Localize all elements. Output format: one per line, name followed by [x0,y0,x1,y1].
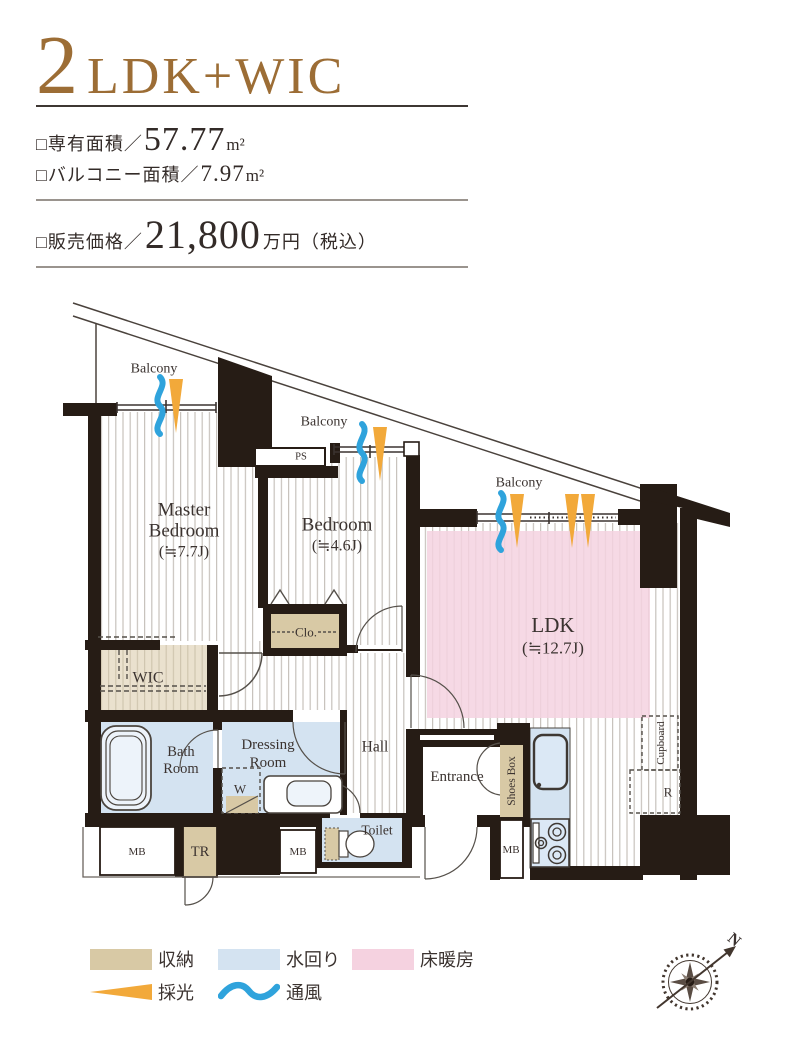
label-clo: Clo. [295,625,317,640]
legend-daylight: 採光 [90,979,194,1005]
label-balcony-3: Balcony [496,476,543,491]
legend-ventilation-label: 通風 [286,979,322,1005]
water-swatch-icon [218,949,280,970]
entrance-step-line [420,735,494,740]
storage-swatch-icon [90,949,152,970]
legend-ventilation: 通風 [218,979,322,1005]
legend-water: 水回り [218,946,340,972]
label-dressing-2: Room [250,755,287,771]
legend-floor-heating-label: 床暖房 [420,946,474,972]
label-dressing-1: Dressing [241,737,295,753]
label-refrigerator: R [664,785,673,800]
label-bath-1: Bath [167,744,195,760]
legend-daylight-label: 採光 [158,979,194,1005]
label-balcony-1: Balcony [131,362,178,377]
kitchen-sink-icon [534,735,567,789]
compass-north-label: N [724,930,744,951]
label-washer: W [234,782,247,797]
label-shoes-box: Shoes Box [506,756,518,806]
bathtub-icon [101,726,151,810]
compass-icon: N [657,930,744,1009]
utility-boxes [100,820,523,878]
label-ps: PS [295,452,307,463]
label-ldk: LDK [531,613,574,637]
legend-storage-label: 収納 [158,946,194,972]
vanity-icon [264,776,342,813]
label-bedroom: Bedroom [302,515,373,536]
legend-floor-heating: 床暖房 [352,946,474,972]
floorplan-page: 2 LDK+WIC □専有面積／ 57.77 m² □バルコニー面積／ 7.97… [0,0,788,1050]
washer-icon [226,796,258,813]
label-bath-2: Room [163,761,199,777]
floor-plan: Balcony Balcony Balcony Master Bedroom (… [0,0,788,1050]
floor-heating-swatch-icon [352,949,414,970]
stove-icon [531,819,569,867]
legend-storage: 収納 [90,946,194,972]
legend: 収納 水回り 床暖房 採光 通風 [90,946,610,1016]
balcony-post [404,442,419,456]
label-master-bedroom-size: (≒7.7J) [159,544,209,561]
label-master-bedroom-1: Master [158,500,211,521]
label-mb-2: MB [289,846,306,858]
label-toilet: Toilet [361,823,393,838]
label-master-bedroom-2: Bedroom [149,521,220,542]
ventilation-legend-icon [218,979,280,1005]
daylight-legend-icon [90,982,152,1002]
ps-box [255,448,325,466]
label-cupboard: Cupboard [655,721,667,765]
label-bedroom-size: (≒4.6J) [312,538,362,555]
label-mb-3: MB [502,844,519,856]
label-mb-1: MB [128,846,145,858]
label-hall: Hall [362,739,389,756]
label-balcony-2: Balcony [301,415,348,430]
label-entrance: Entrance [430,769,484,785]
label-wic: WIC [132,670,163,687]
label-ldk-size: (≒12.7J) [522,639,584,658]
legend-water-label: 水回り [286,946,340,972]
label-tr: TR [191,844,210,860]
